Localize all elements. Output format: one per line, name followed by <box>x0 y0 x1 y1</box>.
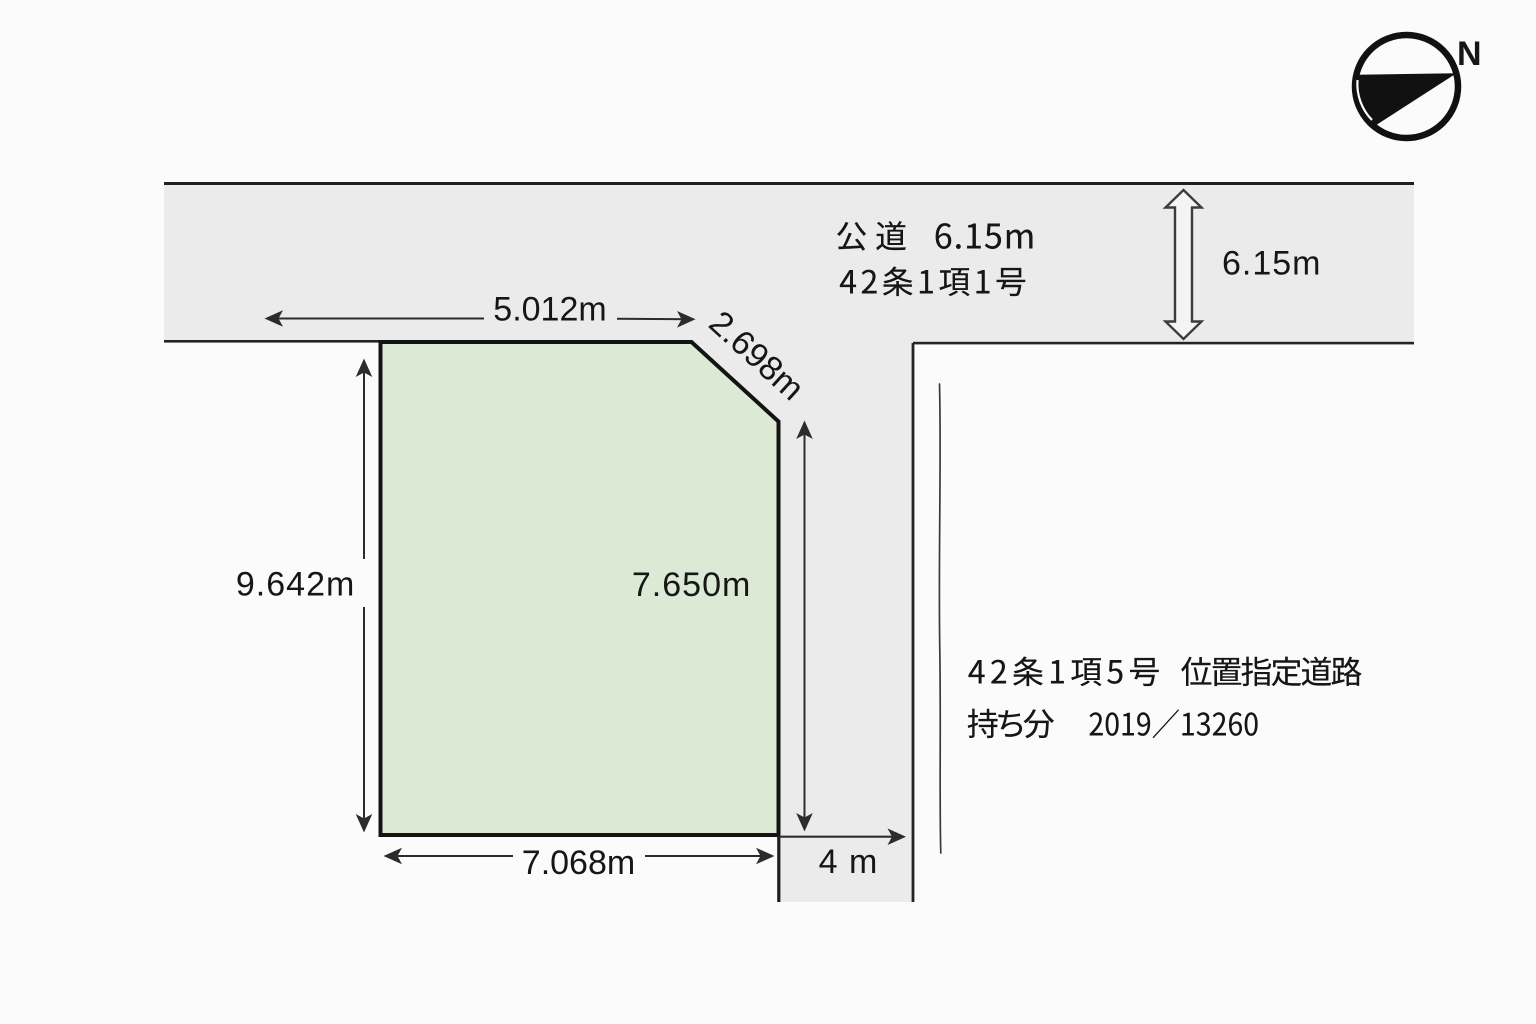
svg-text:7.650m: 7.650m <box>632 566 751 604</box>
svg-text:7.068m: 7.068m <box>522 844 635 882</box>
svg-text:5.012m: 5.012m <box>493 291 606 329</box>
svg-text:6.15m: 6.15m <box>1222 245 1322 283</box>
svg-text:N: N <box>1457 35 1482 73</box>
svg-text:9.642m: 9.642m <box>236 565 355 603</box>
svg-text:4 m: 4 m <box>819 843 879 881</box>
